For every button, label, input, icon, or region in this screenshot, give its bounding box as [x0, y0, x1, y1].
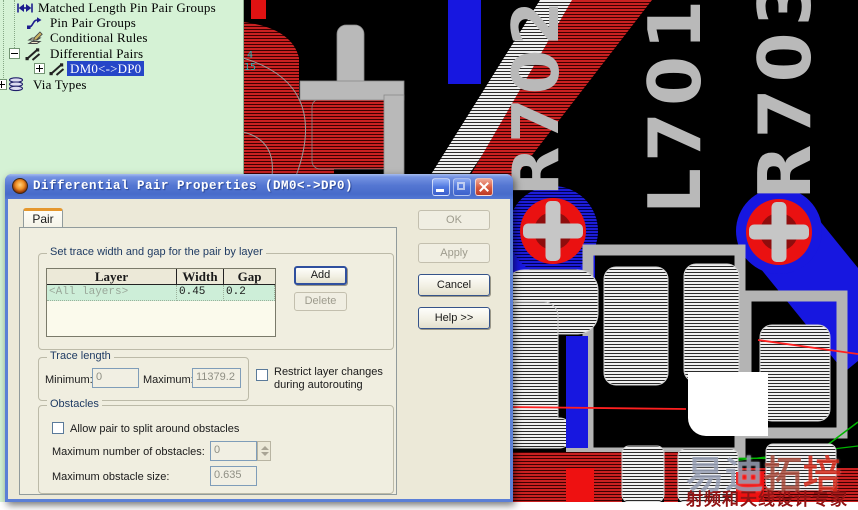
- minimum-field: 0: [92, 368, 139, 388]
- max-obstacle-size-label: Maximum obstacle size:: [52, 471, 169, 483]
- minimize-button[interactable]: [432, 178, 450, 196]
- tree-item-matched-length-pin-pair-groups[interactable]: Matched Length Pin Pair Groups: [0, 0, 243, 15]
- pcb-blue-bar: [448, 0, 481, 84]
- pcb-elbow-foot: [504, 418, 570, 448]
- conditional-rules-icon: [26, 31, 44, 45]
- pcb-highlight-shape: [688, 372, 768, 436]
- cell-width[interactable]: 0.45: [177, 285, 224, 301]
- minimum-label: Minimum:: [45, 374, 93, 386]
- restrict-line1: Restrict layer changes: [274, 366, 383, 379]
- pcb-red-block-1: [566, 468, 594, 502]
- maximize-button: [453, 178, 471, 196]
- tree-item-conditional-rules[interactable]: Conditional Rules: [0, 30, 243, 45]
- expand-box[interactable]: [0, 79, 7, 90]
- spinner-down-icon: [261, 452, 269, 456]
- tree-item-pin-pair-groups[interactable]: Pin Pair Groups: [0, 15, 243, 30]
- restrict-layer-label: Restrict layer changes during autoroutin…: [274, 366, 383, 392]
- max-obstacles-spinner: [257, 441, 271, 461]
- dialog-titlebar[interactable]: Differential Pair Properties (DM0<->DP0): [5, 174, 513, 199]
- pcb-pad-right: [760, 325, 830, 421]
- trace-width-group-label: Set trace width and gap for the pair by …: [47, 246, 266, 258]
- pcb-bottom-pour-2: [664, 452, 678, 502]
- silkscreen-label-R702: R702: [500, 0, 574, 196]
- differential-pair-icon: [24, 47, 42, 61]
- tree-item-via-types[interactable]: Via Types: [0, 77, 243, 92]
- cell-gap[interactable]: 0.2: [224, 285, 275, 301]
- pcb-via-right: [746, 199, 812, 265]
- cell-layer[interactable]: <All layers>: [47, 285, 177, 301]
- col-gap: Gap: [224, 269, 275, 285]
- silkscreen-label-R703: R703: [743, 0, 827, 200]
- tree-item-label: Pin Pair Groups: [50, 15, 136, 30]
- pcb-red-stub: [251, 0, 266, 19]
- max-obstacle-size-field: 0.635: [210, 466, 257, 486]
- expand-box[interactable]: [34, 63, 45, 74]
- silkscreen-label-L701: L701: [633, 0, 717, 214]
- close-button[interactable]: [475, 178, 493, 196]
- tree-item-label: Via Types: [33, 77, 87, 92]
- pin-pair-icon: [26, 16, 44, 30]
- pcb-blue-strip: [566, 336, 588, 452]
- max-obstacles-field: 0: [210, 441, 257, 461]
- pcb-bottom-pad-1: [622, 446, 664, 502]
- tree-item-differential-pairs[interactable]: Differential Pairs: [0, 46, 243, 61]
- differential-pair-properties-dialog: Differential Pair Properties (DM0<->DP0)…: [5, 174, 513, 502]
- pcb-gray-trace-v: [384, 95, 404, 176]
- add-button[interactable]: Add: [294, 266, 347, 285]
- collapse-box[interactable]: [9, 48, 20, 59]
- tree-item-label-selected: DM0<->DP0: [67, 61, 144, 76]
- help-button[interactable]: Help >>: [418, 307, 490, 329]
- delete-button: Delete: [294, 292, 347, 311]
- pcb-pad-a: [604, 267, 668, 385]
- tree-item-label: Matched Length Pin Pair Groups: [38, 0, 216, 15]
- tab-pair[interactable]: Pair: [23, 208, 63, 228]
- pcb-via-left: [520, 198, 586, 264]
- layer-table-header: Layer Width Gap: [47, 269, 275, 285]
- matched-length-icon: [16, 1, 34, 15]
- restrict-layer-checkbox[interactable]: [256, 369, 268, 381]
- obstacles-group-label: Obstacles: [47, 398, 102, 410]
- watermark-subtitle: 射频和天线设计专家: [686, 485, 848, 510]
- col-width: Width: [177, 269, 224, 285]
- dialog-title: Differential Pair Properties (DM0<->DP0): [33, 179, 353, 193]
- spinner-up-icon: [261, 446, 269, 450]
- cancel-button[interactable]: Cancel: [418, 274, 490, 296]
- table-row[interactable]: <All layers> 0.45 0.2: [47, 285, 275, 301]
- via-span-label-bottom: 15: [244, 62, 256, 73]
- allow-split-checkbox[interactable]: [52, 422, 64, 434]
- allow-split-label: Allow pair to split around obstacles: [70, 423, 239, 435]
- via-span-label-top: 4: [247, 50, 253, 61]
- maximum-label: Maximum:: [143, 374, 194, 386]
- apply-button: Apply: [418, 243, 490, 263]
- tree-item-label: Differential Pairs: [50, 46, 143, 61]
- app-window: 4 15 R702 L701 R703: [0, 0, 858, 510]
- pcb-left-pad: [312, 99, 390, 169]
- pcb-pad-b: [684, 264, 739, 382]
- differential-pair-icon: [48, 62, 66, 76]
- tree-item-dm0-dp0[interactable]: DM0<->DP0: [0, 61, 243, 76]
- maximum-field: 11379.2: [192, 368, 241, 388]
- dialog-body: Pair Set trace width and gap for the pai…: [8, 199, 510, 499]
- trace-length-group-label: Trace length: [47, 350, 114, 362]
- restrict-line2: during autorouting: [274, 379, 383, 392]
- layer-table: Layer Width Gap <All layers> 0.45 0.2: [46, 268, 276, 337]
- pcb-bottom-pour-1: [505, 452, 622, 502]
- ok-button: OK: [418, 210, 490, 230]
- flame-app-icon: [12, 178, 28, 194]
- pcb-gray-pad-v: [337, 25, 364, 89]
- col-layer: Layer: [47, 269, 177, 285]
- tree-item-label: Conditional Rules: [50, 30, 148, 45]
- via-types-icon: [8, 77, 26, 91]
- max-obstacles-label: Maximum number of obstacles:: [52, 446, 205, 458]
